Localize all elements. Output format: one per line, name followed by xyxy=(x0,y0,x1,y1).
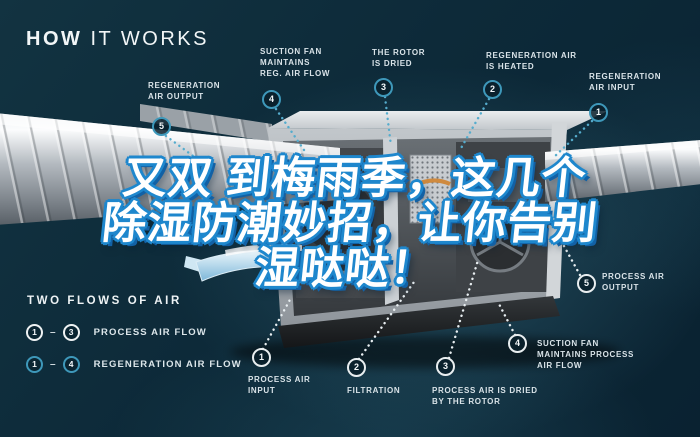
page-title: HOW IT WORKS xyxy=(26,28,209,51)
step-badge-process-4: 4 xyxy=(508,334,527,353)
legend-dash: – xyxy=(50,327,56,338)
legend-row-regeneration: 1 – 4 REGENERATION AIR FLOW xyxy=(26,356,242,373)
callout-label-process-air-input: PROCESS AIR INPUT xyxy=(248,374,311,396)
step-badge-regen-4: 4 xyxy=(262,90,281,109)
headline-line-2: 除湿防潮妙招，让你告别 xyxy=(0,201,700,246)
legend-dash: – xyxy=(50,359,56,370)
callout-label-filtration: FILTRATION xyxy=(347,385,400,396)
callout-label-rotor-is-dried: THE ROTOR IS DRIED xyxy=(372,47,425,69)
step-badge-process-3: 3 xyxy=(436,357,455,376)
legend-badge-from: 1 xyxy=(26,324,43,341)
legend-badge-to: 3 xyxy=(63,324,80,341)
headline-line-3: 湿哒哒！ xyxy=(0,246,698,291)
chinese-headline: 又双 到梅雨季，这几个 除湿防潮妙招，让你告别 湿哒哒！ xyxy=(0,156,700,291)
callout-label-process-air-dried: PROCESS AIR IS DRIED BY THE ROTOR xyxy=(432,385,538,407)
title-bold: HOW xyxy=(26,28,82,50)
step-badge-regen-1: 1 xyxy=(589,103,608,122)
callout-label-regen-air-input: REGENERATION AIR INPUT xyxy=(589,71,661,93)
step-badge-regen-3: 3 xyxy=(374,78,393,97)
callout-label-regen-air-heated: REGENERATION AIR IS HEATED xyxy=(486,50,577,72)
legend-badge-from: 1 xyxy=(26,356,43,373)
headline-line-1: 又双 到梅雨季，这几个 xyxy=(2,156,700,201)
step-badge-process-1: 1 xyxy=(252,348,271,367)
step-badge-regen-2: 2 xyxy=(483,80,502,99)
step-badge-process-2: 2 xyxy=(347,358,366,377)
legend-title: TWO FLOWS OF AIR xyxy=(27,295,182,307)
legend-label-process: PROCESS AIR FLOW xyxy=(94,327,207,338)
callout-label-regeneration-air-output: REGENERATION AIR OUTPUT xyxy=(148,80,220,102)
callout-label-suction-fan-reg: SUCTION FAN MAINTAINS REG. AIR FLOW xyxy=(260,46,330,80)
title-light: IT WORKS xyxy=(82,28,209,50)
legend-badge-to: 4 xyxy=(63,356,80,373)
legend-label-regeneration: REGENERATION AIR FLOW xyxy=(94,359,242,370)
step-badge-regen-5: 5 xyxy=(152,117,171,136)
legend-row-process: 1 – 3 PROCESS AIR FLOW xyxy=(26,324,207,341)
infographic-stage: HOW IT WORKS REGENERATION AIR OUTPUT 5 S… xyxy=(0,0,700,437)
callout-label-suction-fan-process: SUCTION FAN MAINTAINS PROCESS AIR FLOW xyxy=(537,338,634,372)
